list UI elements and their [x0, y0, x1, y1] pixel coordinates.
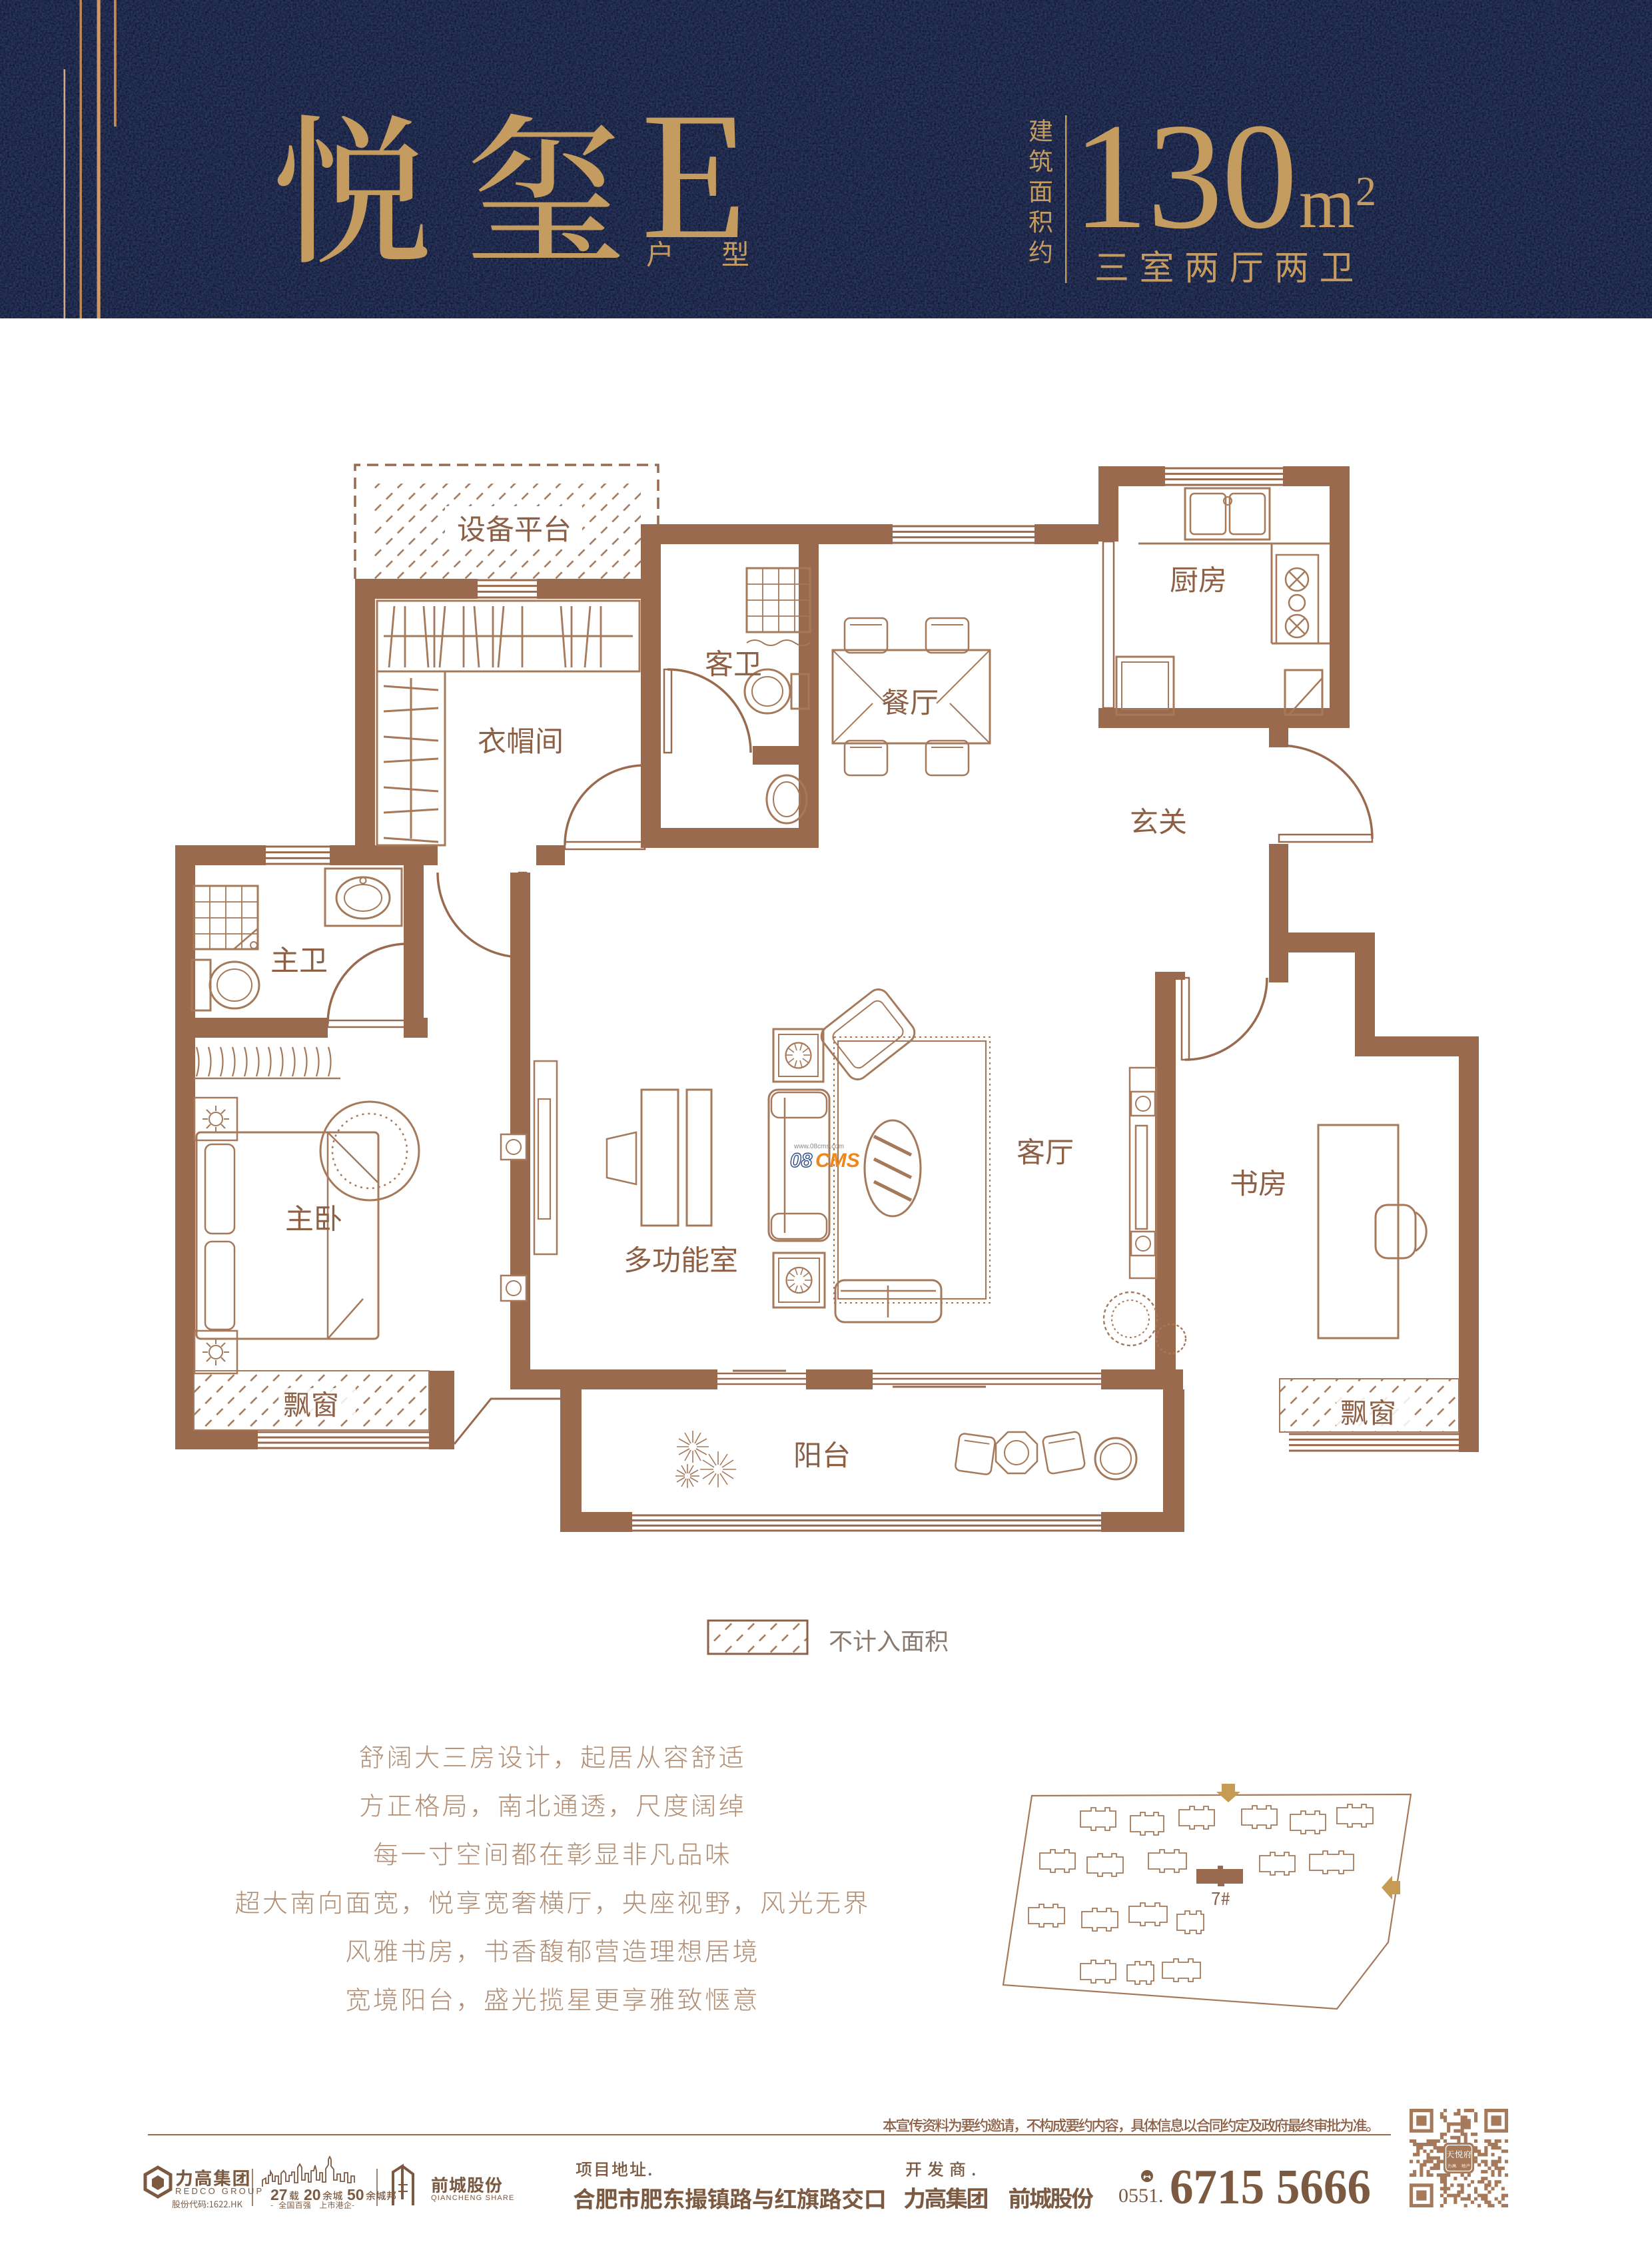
svg-text:2: 2	[1356, 169, 1376, 214]
svg-text:27: 27	[270, 2186, 288, 2203]
svg-text:20: 20	[304, 2186, 321, 2203]
svg-text:08: 08	[790, 1150, 813, 1172]
svg-text:m: m	[1299, 164, 1355, 243]
svg-text:50: 50	[347, 2186, 364, 2203]
svg-text:130: 130	[1072, 93, 1296, 260]
svg-text:6715 5666: 6715 5666	[1170, 2160, 1371, 2215]
svg-text:QIANCHENG SHARE: QIANCHENG SHARE	[431, 2194, 515, 2202]
svg-text:REDCO GROUP: REDCO GROUP	[175, 2186, 264, 2196]
svg-text:CMS: CMS	[815, 1150, 860, 1172]
svg-text:0551.: 0551.	[1118, 2185, 1164, 2207]
